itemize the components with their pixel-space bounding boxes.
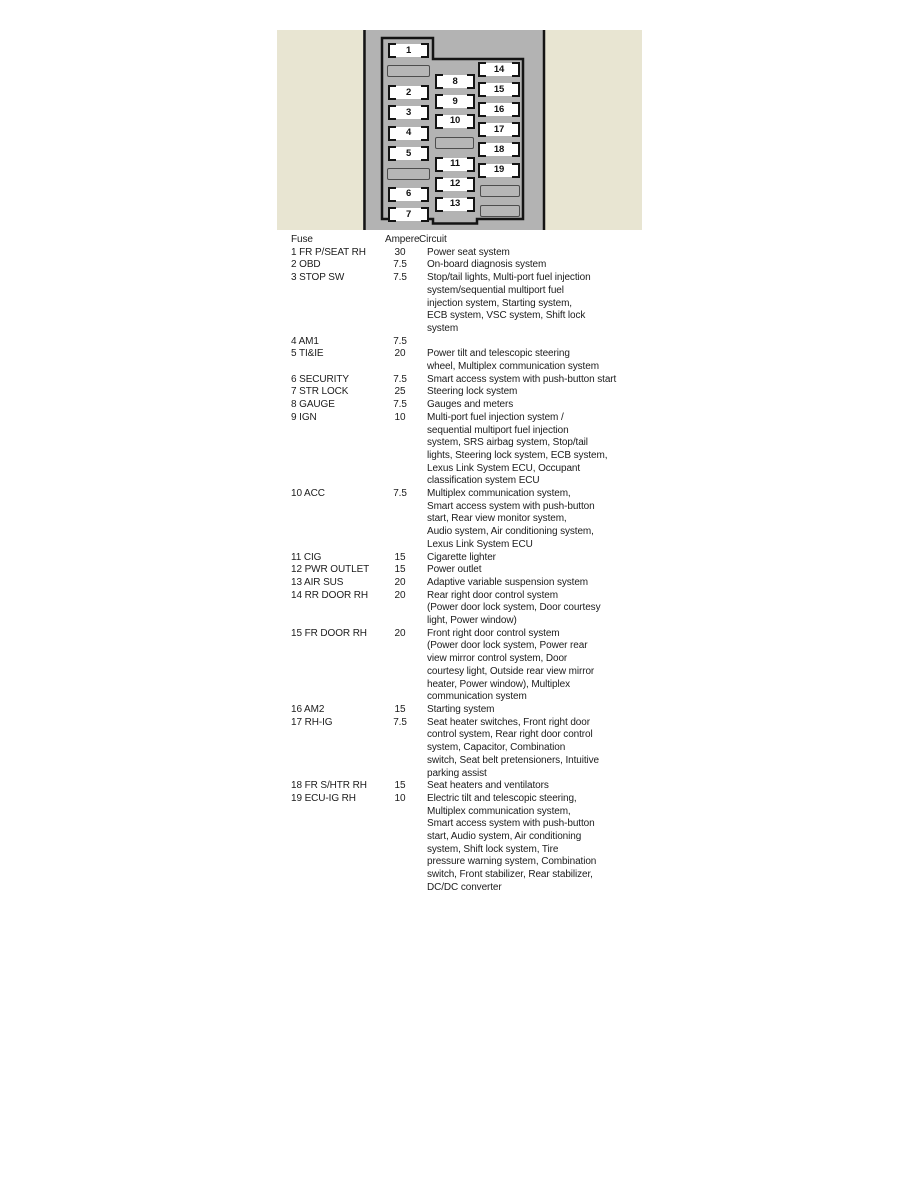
fuse-number: 4 bbox=[406, 128, 411, 138]
left-bracket-icon bbox=[435, 157, 443, 172]
circuit-cell: Multiplex communication system, Smart ac… bbox=[415, 488, 645, 552]
ampere-cell: 7.5 bbox=[385, 399, 415, 412]
fuse-slot-16: 16 bbox=[479, 103, 519, 116]
right-bracket-icon bbox=[467, 177, 475, 192]
right-bracket-icon bbox=[421, 207, 429, 222]
right-bracket-icon bbox=[467, 197, 475, 212]
left-bracket-icon bbox=[435, 114, 443, 129]
ampere-cell: 15 bbox=[385, 564, 415, 577]
fuse-number: 18 bbox=[494, 145, 504, 155]
ampere-cell: 7.5 bbox=[385, 717, 415, 730]
fuse-slot-8: 8 bbox=[436, 75, 474, 88]
table-row: 13 AIR SUS20Adaptive variable suspension… bbox=[291, 577, 651, 590]
blank-slot bbox=[435, 137, 474, 149]
fuse-box-diagram: 12345678910111213141516171819 bbox=[277, 30, 642, 230]
circuit-cell: Electric tilt and telescopic steering, M… bbox=[415, 793, 645, 895]
ampere-cell: 20 bbox=[385, 577, 415, 590]
right-bracket-icon bbox=[467, 114, 475, 129]
fuse-name-cell: 11 CIG bbox=[291, 552, 385, 565]
left-bracket-icon bbox=[388, 85, 396, 100]
table-row: 4 AM17.5 bbox=[291, 336, 651, 349]
blank-slot bbox=[387, 168, 430, 180]
table-row: 15 FR DOOR RH20Front right door control … bbox=[291, 628, 651, 704]
left-bracket-icon bbox=[388, 43, 396, 58]
ampere-cell: 7.5 bbox=[385, 259, 415, 272]
table-row: 5 TI&IE20Power tilt and telescopic steer… bbox=[291, 348, 651, 373]
ampere-cell: 10 bbox=[385, 412, 415, 425]
fuse-slot-9: 9 bbox=[436, 95, 474, 108]
fuse-slot-18: 18 bbox=[479, 143, 519, 156]
right-bracket-icon bbox=[467, 157, 475, 172]
right-bracket-icon bbox=[512, 62, 520, 77]
fuse-number: 19 bbox=[494, 165, 504, 175]
left-bracket-icon bbox=[388, 126, 396, 141]
left-bracket-icon bbox=[388, 146, 396, 161]
circuit-cell: Seat heaters and ventilators bbox=[415, 780, 645, 793]
blank-slot bbox=[480, 185, 520, 197]
ampere-cell: 15 bbox=[385, 704, 415, 717]
fuse-name-cell: 16 AM2 bbox=[291, 704, 385, 717]
fuse-name-cell: 10 ACC bbox=[291, 488, 385, 501]
table-row: 11 CIG15Cigarette lighter bbox=[291, 552, 651, 565]
right-bracket-icon bbox=[512, 82, 520, 97]
blank-slot bbox=[480, 205, 520, 217]
ampere-cell: 25 bbox=[385, 386, 415, 399]
table-row: 18 FR S/HTR RH15Seat heaters and ventila… bbox=[291, 780, 651, 793]
fuse-number: 6 bbox=[406, 189, 411, 199]
fuse-slot-17: 17 bbox=[479, 123, 519, 136]
table-body: 1 FR P/SEAT RH30Power seat system2 OBD7.… bbox=[291, 247, 651, 895]
table-row: 14 RR DOOR RH20Rear right door control s… bbox=[291, 590, 651, 628]
table-row: 17 RH-IG7.5Seat heater switches, Front r… bbox=[291, 717, 651, 781]
circuit-cell: Starting system bbox=[415, 704, 645, 717]
fuse-number: 8 bbox=[452, 77, 457, 87]
table-header: Fuse Ampere Circuit bbox=[291, 234, 651, 247]
table-row: 19 ECU-IG RH10Electric tilt and telescop… bbox=[291, 793, 651, 895]
left-bracket-icon bbox=[478, 102, 486, 117]
left-bracket-icon bbox=[388, 105, 396, 120]
left-bracket-icon bbox=[388, 207, 396, 222]
ampere-cell: 7.5 bbox=[385, 336, 415, 349]
ampere-cell: 10 bbox=[385, 793, 415, 806]
fuse-number: 3 bbox=[406, 108, 411, 118]
ampere-cell: 20 bbox=[385, 590, 415, 603]
fuse-name-cell: 17 RH-IG bbox=[291, 717, 385, 730]
fuse-name-cell: 8 GAUGE bbox=[291, 399, 385, 412]
blank-slot bbox=[387, 65, 430, 77]
right-bracket-icon bbox=[512, 102, 520, 117]
ampere-cell: 30 bbox=[385, 247, 415, 260]
circuit-cell: Smart access system with push-button sta… bbox=[415, 374, 645, 387]
right-bracket-icon bbox=[467, 74, 475, 89]
fuse-name-cell: 9 IGN bbox=[291, 412, 385, 425]
fuse-name-cell: 14 RR DOOR RH bbox=[291, 590, 385, 603]
fuse-number: 1 bbox=[406, 46, 411, 56]
fuse-slot-12: 12 bbox=[436, 178, 474, 191]
fuse-name-cell: 4 AM1 bbox=[291, 336, 385, 349]
fuse-number: 2 bbox=[406, 88, 411, 98]
right-bracket-icon bbox=[512, 163, 520, 178]
table-row: 9 IGN10Multi-port fuel injection system … bbox=[291, 412, 651, 488]
ampere-cell: 7.5 bbox=[385, 488, 415, 501]
fuse-slot-14: 14 bbox=[479, 63, 519, 76]
fuse-slot-7: 7 bbox=[389, 208, 428, 221]
fuse-name-cell: 18 FR S/HTR RH bbox=[291, 780, 385, 793]
right-bracket-icon bbox=[467, 94, 475, 109]
right-bracket-icon bbox=[421, 187, 429, 202]
table-row: 10 ACC7.5Multiplex communication system,… bbox=[291, 488, 651, 552]
table-row: 8 GAUGE7.5Gauges and meters bbox=[291, 399, 651, 412]
left-bracket-icon bbox=[435, 94, 443, 109]
fuse-number: 5 bbox=[406, 149, 411, 159]
circuit-cell: Cigarette lighter bbox=[415, 552, 645, 565]
fuse-number: 16 bbox=[494, 105, 504, 115]
fuse-name-cell: 1 FR P/SEAT RH bbox=[291, 247, 385, 260]
table-row: 16 AM215Starting system bbox=[291, 704, 651, 717]
right-bracket-icon bbox=[421, 85, 429, 100]
fuse-number: 7 bbox=[406, 210, 411, 220]
right-bracket-icon bbox=[512, 122, 520, 137]
fuse-name-cell: 13 AIR SUS bbox=[291, 577, 385, 590]
table-row: 2 OBD7.5On-board diagnosis system bbox=[291, 259, 651, 272]
left-bracket-icon bbox=[435, 197, 443, 212]
fuse-name-cell: 3 STOP SW bbox=[291, 272, 385, 285]
fuse-name-cell: 19 ECU-IG RH bbox=[291, 793, 385, 806]
right-bracket-icon bbox=[421, 146, 429, 161]
left-bracket-icon bbox=[435, 177, 443, 192]
fuse-slot-15: 15 bbox=[479, 83, 519, 96]
fuse-name-cell: 2 OBD bbox=[291, 259, 385, 272]
column-header-circuit: Circuit bbox=[419, 234, 447, 247]
fuse-slot-4: 4 bbox=[389, 127, 428, 140]
circuit-cell: Rear right door control system (Power do… bbox=[415, 590, 645, 628]
table-row: 3 STOP SW7.5Stop/tail lights, Multi-port… bbox=[291, 272, 651, 336]
circuit-cell: Adaptive variable suspension system bbox=[415, 577, 645, 590]
left-bracket-icon bbox=[435, 74, 443, 89]
fuse-slot-19: 19 bbox=[479, 164, 519, 177]
fuse-number: 17 bbox=[494, 125, 504, 135]
fuse-slot-5: 5 bbox=[389, 147, 428, 160]
circuit-cell: Stop/tail lights, Multi-port fuel inject… bbox=[415, 272, 645, 336]
fuse-slot-2: 2 bbox=[389, 86, 428, 99]
right-bracket-icon bbox=[421, 43, 429, 58]
circuit-cell: Power tilt and telescopic steering wheel… bbox=[415, 348, 645, 373]
fuse-slot-6: 6 bbox=[389, 188, 428, 201]
fuse-name-cell: 12 PWR OUTLET bbox=[291, 564, 385, 577]
right-bracket-icon bbox=[421, 105, 429, 120]
manual-page: 12345678910111213141516171819 Fuse Amper… bbox=[0, 0, 918, 1188]
fuse-table: Fuse Ampere Circuit 1 FR P/SEAT RH30Powe… bbox=[291, 234, 651, 895]
ampere-cell: 7.5 bbox=[385, 272, 415, 285]
circuit-cell: Gauges and meters bbox=[415, 399, 645, 412]
fuse-slot-11: 11 bbox=[436, 158, 474, 171]
left-bracket-icon bbox=[478, 163, 486, 178]
circuit-cell: Front right door control system (Power d… bbox=[415, 628, 645, 704]
circuit-cell: On-board diagnosis system bbox=[415, 259, 645, 272]
column-header-ampere: Ampere bbox=[385, 234, 419, 247]
right-bracket-icon bbox=[421, 126, 429, 141]
table-row: 6 SECURITY7.5Smart access system with pu… bbox=[291, 374, 651, 387]
circuit-cell: Power seat system bbox=[415, 247, 645, 260]
ampere-cell: 20 bbox=[385, 348, 415, 361]
left-bracket-icon bbox=[478, 122, 486, 137]
left-bracket-icon bbox=[478, 82, 486, 97]
fuse-number: 9 bbox=[452, 97, 457, 107]
fuse-number: 14 bbox=[494, 65, 504, 75]
table-row: 1 FR P/SEAT RH30Power seat system bbox=[291, 247, 651, 260]
ampere-cell: 15 bbox=[385, 780, 415, 793]
table-row: 12 PWR OUTLET15Power outlet bbox=[291, 564, 651, 577]
fuse-slot-3: 3 bbox=[389, 106, 428, 119]
fuse-slots: 12345678910111213141516171819 bbox=[277, 30, 642, 230]
ampere-cell: 20 bbox=[385, 628, 415, 641]
right-bracket-icon bbox=[512, 142, 520, 157]
ampere-cell: 15 bbox=[385, 552, 415, 565]
fuse-slot-13: 13 bbox=[436, 198, 474, 211]
fuse-name-cell: 6 SECURITY bbox=[291, 374, 385, 387]
column-header-fuse: Fuse bbox=[291, 234, 313, 247]
table-row: 7 STR LOCK25Steering lock system bbox=[291, 386, 651, 399]
circuit-cell: Steering lock system bbox=[415, 386, 645, 399]
fuse-number: 10 bbox=[450, 116, 460, 126]
fuse-name-cell: 15 FR DOOR RH bbox=[291, 628, 385, 641]
fuse-number: 11 bbox=[450, 159, 460, 169]
fuse-slot-10: 10 bbox=[436, 115, 474, 128]
fuse-slot-1: 1 bbox=[389, 44, 428, 57]
fuse-name-cell: 7 STR LOCK bbox=[291, 386, 385, 399]
fuse-name-cell: 5 TI&IE bbox=[291, 348, 385, 361]
left-bracket-icon bbox=[478, 142, 486, 157]
ampere-cell: 7.5 bbox=[385, 374, 415, 387]
fuse-number: 12 bbox=[450, 179, 460, 189]
left-bracket-icon bbox=[388, 187, 396, 202]
circuit-cell: Power outlet bbox=[415, 564, 645, 577]
circuit-cell: Multi-port fuel injection system / seque… bbox=[415, 412, 645, 488]
fuse-number: 15 bbox=[494, 85, 504, 95]
fuse-number: 13 bbox=[450, 199, 460, 209]
circuit-cell: Seat heater switches, Front right door c… bbox=[415, 717, 645, 781]
left-bracket-icon bbox=[478, 62, 486, 77]
